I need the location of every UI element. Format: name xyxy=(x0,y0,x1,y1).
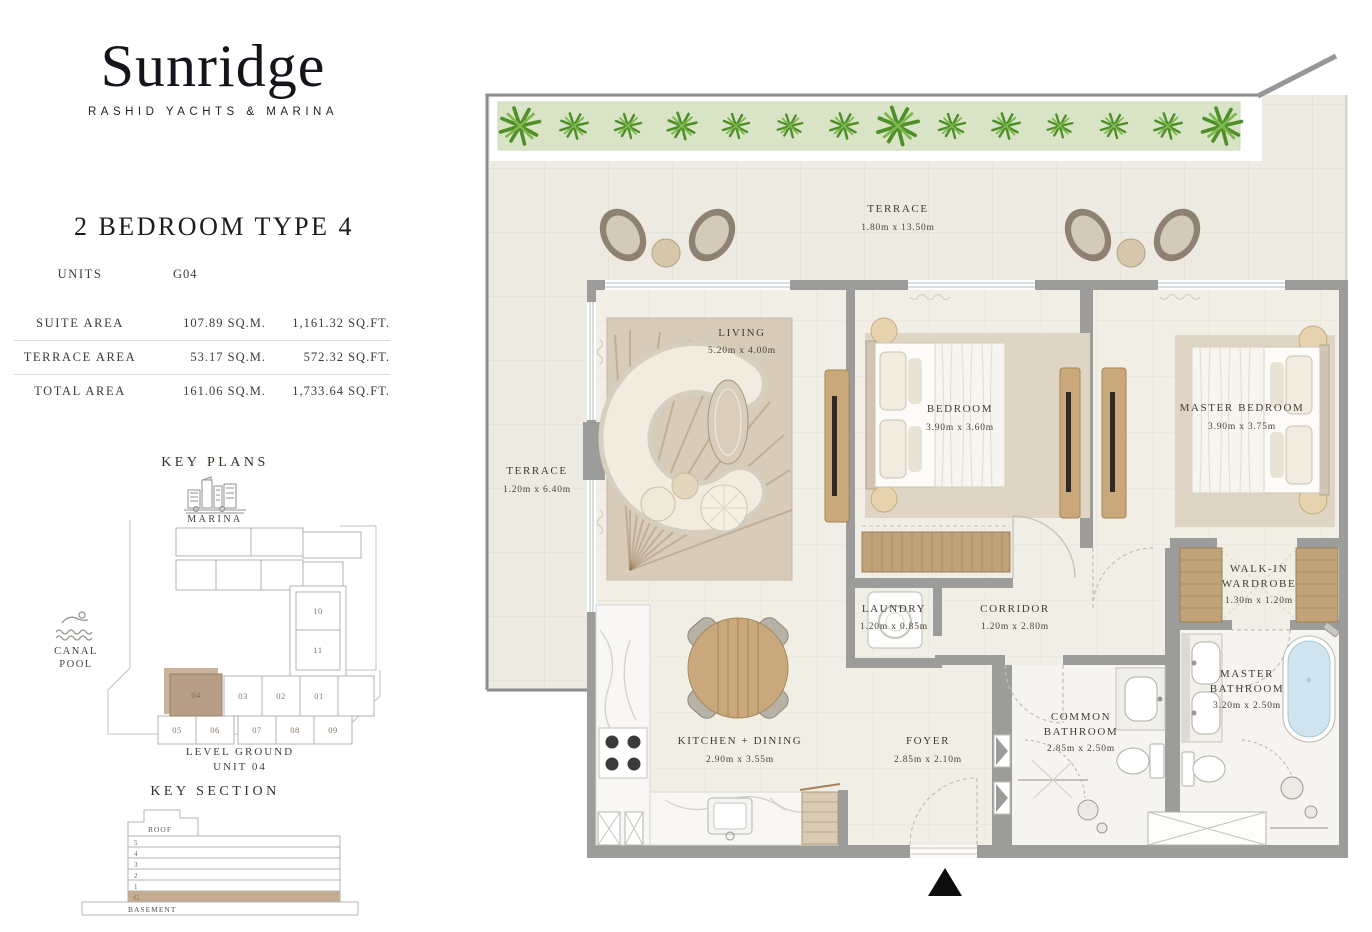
svg-text:CORRIDOR: CORRIDOR xyxy=(980,603,1050,615)
svg-text:MASTER: MASTER xyxy=(1220,668,1274,680)
entrance-threshold xyxy=(910,845,977,858)
svg-text:2: 2 xyxy=(134,872,138,880)
svg-text:01: 01 xyxy=(314,691,324,701)
svg-text:3.90m x 3.60m: 3.90m x 3.60m xyxy=(926,423,994,433)
row-sqm: 53.17 SQ.M. xyxy=(146,350,266,365)
svg-text:08: 08 xyxy=(290,725,300,735)
brand-logo: Sunridge RASHID YACHTS & MARINA xyxy=(30,36,396,118)
living-tv-unit xyxy=(825,370,849,522)
brand-name: Sunridge xyxy=(30,36,396,96)
svg-text:BATHROOM: BATHROOM xyxy=(1210,683,1285,695)
table-row-units: UNITS G04 xyxy=(14,258,390,291)
svg-text:2.85m x 2.50m: 2.85m x 2.50m xyxy=(1047,744,1115,754)
bedroom-wardrobe xyxy=(862,526,1010,572)
common-bath-label: COMMON BATHROOM 2.85m x 2.50m xyxy=(1044,711,1119,754)
svg-text:3.20m x 2.50m: 3.20m x 2.50m xyxy=(1213,701,1281,711)
svg-text:G: G xyxy=(134,894,139,902)
washing-machine xyxy=(868,592,922,648)
svg-text:3.90m x 3.75m: 3.90m x 3.75m xyxy=(1208,422,1276,432)
dining-set xyxy=(684,614,793,723)
svg-text:2.90m x 3.55m: 2.90m x 3.55m xyxy=(706,755,774,765)
page-title: 2 BEDROOM TYPE 4 xyxy=(64,212,364,242)
pantry-sliding-door xyxy=(800,784,840,844)
key-section-diagram: ROOF 5 4 3 2 1 G BASEMENT xyxy=(80,806,360,918)
svg-text:LAUNDRY: LAUNDRY xyxy=(862,603,926,615)
vanity-sink xyxy=(1116,668,1165,730)
svg-text:05: 05 xyxy=(172,725,182,735)
svg-text:4: 4 xyxy=(134,850,138,858)
marina-skyline-icon xyxy=(182,476,248,514)
entry-direction-marker xyxy=(928,868,962,896)
svg-text:1.80m x 13.50m: 1.80m x 13.50m xyxy=(861,223,934,233)
svg-text:MASTER BEDROOM: MASTER BEDROOM xyxy=(1180,402,1305,414)
laundry: LAUNDRY 1.20m x 0.85m xyxy=(860,592,928,648)
svg-text:06: 06 xyxy=(210,725,220,735)
svg-text:TERRACE: TERRACE xyxy=(506,465,567,477)
walk-in-label: WALK-IN WARDROBE 1.30m x 1.20m xyxy=(1222,563,1297,606)
round-side-table xyxy=(641,487,675,521)
pouf xyxy=(701,485,747,531)
svg-text:10: 10 xyxy=(313,606,323,616)
floorplan-brochure-page: Sunridge RASHID YACHTS & MARINA 2 BEDROO… xyxy=(0,0,1372,932)
svg-text:09: 09 xyxy=(328,725,338,735)
key-plan-diagram: 10 11 04 03 02 01 05 06 07 08 09 xyxy=(78,520,408,748)
units-value: G04 xyxy=(146,267,293,282)
planter-strip xyxy=(498,102,1240,150)
svg-text:11: 11 xyxy=(313,645,322,655)
svg-text:03: 03 xyxy=(238,691,248,701)
svg-text:5: 5 xyxy=(134,839,138,847)
svg-text:BATHROOM: BATHROOM xyxy=(1044,726,1119,738)
column-boxes xyxy=(598,812,643,845)
svg-text:1.30m x 1.20m: 1.30m x 1.20m xyxy=(1225,596,1293,606)
living-window-top xyxy=(605,280,790,290)
row-sqft: 1,161.32 SQ.FT. xyxy=(266,316,390,331)
row-label: TOTAL AREA xyxy=(14,384,146,399)
units-label: UNITS xyxy=(14,267,146,282)
svg-text:KITCHEN + DINING: KITCHEN + DINING xyxy=(678,735,803,747)
master-bath-label: MASTER BATHROOM 3.20m x 2.50m xyxy=(1210,668,1285,711)
svg-text:LIVING: LIVING xyxy=(718,327,765,339)
service-shaft xyxy=(1148,812,1266,845)
area-table: UNITS G04 SUITE AREA 107.89 SQ.M. 1,161.… xyxy=(14,258,390,408)
svg-text:1.20m x 0.85m: 1.20m x 0.85m xyxy=(860,622,928,632)
svg-text:1.20m x 2.80m: 1.20m x 2.80m xyxy=(981,622,1049,632)
svg-text:FOYER: FOYER xyxy=(906,735,950,747)
svg-text:BEDROOM: BEDROOM xyxy=(927,403,993,415)
key-plan-caption: LEVEL GROUND UNIT 04 xyxy=(140,745,340,776)
svg-text:04: 04 xyxy=(191,690,201,700)
side-table-small xyxy=(672,473,698,499)
svg-text:1: 1 xyxy=(134,883,138,891)
caption-unit: UNIT 04 xyxy=(140,760,340,775)
svg-text:COMMON: COMMON xyxy=(1051,711,1111,723)
basement-label: BASEMENT xyxy=(128,905,176,914)
master-tv-unit xyxy=(1102,368,1126,518)
key-section-heading: KEY SECTION xyxy=(40,784,390,800)
key-plans-heading: KEY PLANS xyxy=(40,455,390,471)
row-label: SUITE AREA xyxy=(14,316,146,331)
table-row-total-area: TOTAL AREA 161.06 SQ.M. 1,733.64 SQ.FT. xyxy=(14,374,390,408)
oval-coffee-table xyxy=(708,380,748,464)
row-sqm: 161.06 SQ.M. xyxy=(146,384,266,399)
svg-text:WARDROBE: WARDROBE xyxy=(1222,578,1297,590)
row-label: TERRACE AREA xyxy=(14,350,146,365)
bedroom-tv-unit xyxy=(1060,368,1080,518)
svg-text:5.20m x 4.00m: 5.20m x 4.00m xyxy=(708,346,776,356)
svg-text:02: 02 xyxy=(276,691,286,701)
master-bed xyxy=(1192,345,1329,495)
boundary-diagonal xyxy=(1258,56,1336,96)
bedroom-bed xyxy=(866,341,1005,489)
row-sqft: 572.32 SQ.FT. xyxy=(266,350,390,365)
wardrobe-cabinet xyxy=(1180,548,1222,622)
key-plan-top-building xyxy=(176,528,361,590)
section-ground-floor-highlight xyxy=(128,891,340,902)
floor-plan: TERRACE 1.80m x 13.50m TERRACE 1.20m x 6… xyxy=(480,40,1372,932)
svg-text:TERRACE: TERRACE xyxy=(867,203,928,215)
master-window-top xyxy=(1158,280,1285,290)
brand-tagline: RASHID YACHTS & MARINA xyxy=(30,106,396,118)
bedroom-window-top xyxy=(908,280,1035,290)
nightstand xyxy=(871,318,897,344)
wardrobe-cabinet xyxy=(1296,548,1338,622)
table-row-terrace-area: TERRACE AREA 53.17 SQ.M. 572.32 SQ.FT. xyxy=(14,340,390,374)
svg-text:07: 07 xyxy=(252,725,262,735)
stove xyxy=(599,728,647,778)
svg-text:1.20m x 6.40m: 1.20m x 6.40m xyxy=(503,485,571,495)
row-sqm: 107.89 SQ.M. xyxy=(146,316,266,331)
row-sqft: 1,733.64 SQ.FT. xyxy=(266,384,390,399)
living-window-left-1 xyxy=(587,302,596,420)
svg-text:2.85m x 2.10m: 2.85m x 2.10m xyxy=(894,755,962,765)
table-row-suite-area: SUITE AREA 107.89 SQ.M. 1,161.32 SQ.FT. xyxy=(14,307,390,340)
svg-text:3: 3 xyxy=(134,861,138,869)
kitchen-sink xyxy=(708,798,752,840)
nightstand xyxy=(871,486,897,512)
svg-text:WALK-IN: WALK-IN xyxy=(1230,563,1288,575)
living-window-left-2 xyxy=(587,480,596,612)
key-plan-lower-building xyxy=(158,586,374,744)
roof-label: ROOF xyxy=(148,825,172,834)
caption-level: LEVEL GROUND xyxy=(140,745,340,760)
